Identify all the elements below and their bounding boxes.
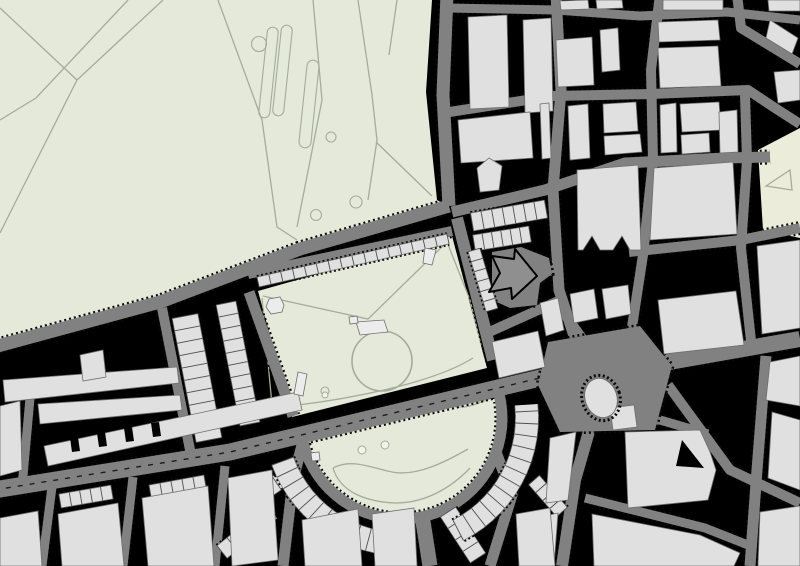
building xyxy=(458,112,533,163)
building xyxy=(80,350,106,381)
crescent-hut xyxy=(311,452,320,461)
building xyxy=(372,508,417,566)
building xyxy=(766,356,800,406)
garden-hut xyxy=(349,316,358,324)
portland-place xyxy=(422,515,430,566)
tree-circle xyxy=(381,441,389,449)
building xyxy=(774,70,800,103)
building xyxy=(540,103,551,159)
building xyxy=(516,508,555,566)
building xyxy=(602,285,631,319)
building xyxy=(600,28,620,72)
building xyxy=(719,110,738,153)
building xyxy=(680,102,721,132)
building xyxy=(560,0,589,10)
building xyxy=(596,0,623,9)
building xyxy=(768,412,800,490)
building xyxy=(142,486,214,566)
building xyxy=(468,15,509,109)
building xyxy=(523,18,553,113)
building xyxy=(658,20,720,42)
garden-pond-octagon xyxy=(266,297,284,314)
tree-circle xyxy=(358,446,366,454)
building xyxy=(58,503,124,566)
building xyxy=(658,291,744,354)
building xyxy=(556,37,594,87)
city-map-canvas[interactable] xyxy=(0,0,800,566)
building xyxy=(768,0,800,11)
building xyxy=(568,104,590,160)
building xyxy=(758,506,800,566)
triangle-court-building xyxy=(625,430,716,508)
building xyxy=(603,102,638,133)
building xyxy=(228,470,278,566)
building xyxy=(604,134,642,155)
building xyxy=(663,0,723,10)
building xyxy=(570,289,598,323)
building xyxy=(0,511,42,566)
garden-pavilion xyxy=(356,320,388,335)
map-viewport xyxy=(0,0,800,566)
building xyxy=(650,162,737,240)
building xyxy=(660,103,677,153)
tree-circle xyxy=(322,392,328,398)
building xyxy=(757,240,800,334)
building xyxy=(0,401,22,476)
building xyxy=(681,133,710,154)
building xyxy=(658,46,721,88)
terrace-row-body xyxy=(60,492,112,501)
albany-street xyxy=(443,0,449,206)
m-notch-building xyxy=(577,165,641,250)
